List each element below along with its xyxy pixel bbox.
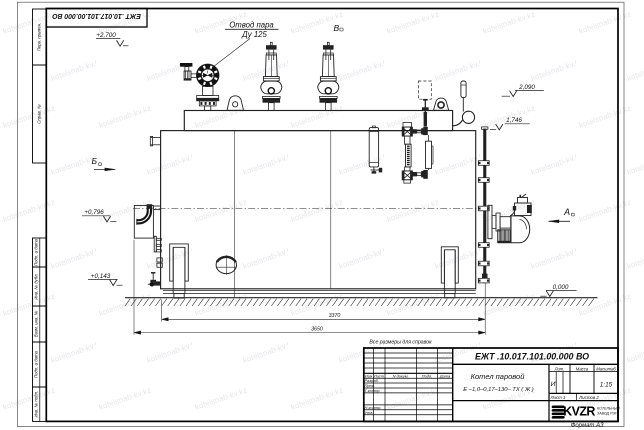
svg-text:1,746: 1,746 <box>506 117 522 124</box>
svg-text:Перв. примен.: Перв. примен. <box>37 23 42 52</box>
svg-text:KVZR: KVZR <box>563 405 595 419</box>
svg-text:ЕЖТ .10.017.101.00.000 ВО: ЕЖТ .10.017.101.00.000 ВО <box>475 352 589 362</box>
svg-text:1:15: 1:15 <box>600 382 613 389</box>
svg-text:Утв.: Утв. <box>365 410 374 415</box>
svg-text:0,000: 0,000 <box>553 284 569 291</box>
svg-text:Отвод пара: Отвод пара <box>229 21 274 30</box>
svg-text:Б: Б <box>92 156 98 166</box>
svg-text:И: И <box>551 381 556 388</box>
svg-text:Масштаб: Масштаб <box>596 366 616 371</box>
svg-text:+0,143: +0,143 <box>91 273 111 280</box>
svg-text:Инв. № подл.: Инв. № подл. <box>33 391 38 418</box>
svg-text:Подп. и дата: Подп. и дата <box>33 350 38 378</box>
svg-text:+2,700: +2,700 <box>96 32 116 39</box>
svg-text:Лит.: Лит. <box>554 366 565 371</box>
svg-text:Формат А3: Формат А3 <box>571 423 604 429</box>
svg-text:Справ. №: Справ. № <box>37 104 42 124</box>
svg-text:+0,796: +0,796 <box>84 209 104 216</box>
svg-text:3370: 3370 <box>329 313 341 319</box>
svg-text:КОТЕЛЬНЫЙ: КОТЕЛЬНЫЙ <box>597 407 620 411</box>
svg-text:3650: 3650 <box>311 326 323 332</box>
svg-text:В: В <box>333 23 339 33</box>
svg-text:Котел паровой: Котел паровой <box>471 372 526 381</box>
svg-text:Дата: Дата <box>439 373 451 378</box>
svg-text:N докум.: N докум. <box>393 373 409 378</box>
svg-text:Е –1,0–0,17–130– ТХ ( Ж ): Е –1,0–0,17–130– ТХ ( Ж ) <box>463 387 533 393</box>
svg-text:ЕЖТ .10.017.101.00.000 ВО: ЕЖТ .10.017.101.00.000 ВО <box>52 12 141 19</box>
svg-text:Подп.: Подп. <box>422 373 433 378</box>
svg-text:Лист 1: Лист 1 <box>550 395 567 400</box>
svg-text:Листов 2: Листов 2 <box>578 395 599 400</box>
svg-text:Инв. № дубл.: Инв. № дубл. <box>33 273 38 299</box>
svg-text:А: А <box>563 207 570 217</box>
svg-text:ЗАВОД РЭП: ЗАВОД РЭП <box>597 412 618 416</box>
svg-text:Взам. инв. №: Взам. инв. № <box>33 310 38 337</box>
svg-text:Масса: Масса <box>576 366 589 371</box>
svg-text:Подп. и дата: Подп. и дата <box>33 238 38 266</box>
svg-text:Т.контр.: Т.контр. <box>365 388 381 393</box>
svg-text:Все размеры для справок: Все размеры для справок <box>369 339 432 345</box>
svg-text:Ду 125: Ду 125 <box>241 30 267 39</box>
svg-text:2,090: 2,090 <box>518 84 535 91</box>
